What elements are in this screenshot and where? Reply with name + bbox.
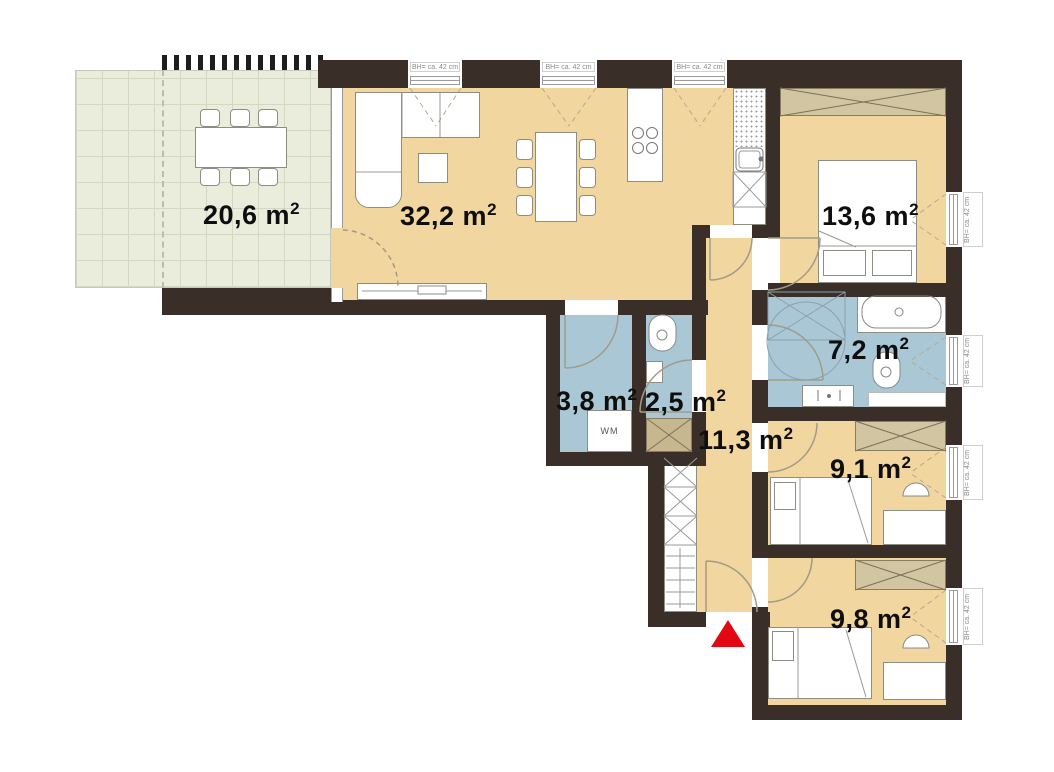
area-sup: 2 [902,603,912,622]
plan-line-overlay [0,0,1054,772]
living-hall-door-arc [710,238,752,280]
area-sup: 2 [628,385,638,404]
area-value: 9,1 m [830,454,902,484]
area-value: 9,8 m [830,604,902,634]
room-98-door-arc [768,558,812,602]
hall-cabinet-detail [664,458,697,608]
area-value: 32,2 m [400,201,487,231]
area-label-room-91: 9,1 m2 [830,453,912,485]
area-sup: 2 [487,200,497,219]
area-sup: 2 [900,334,910,353]
toilet [649,315,676,351]
area-label-wc: 2,5 m2 [645,386,727,418]
door-arcs [343,230,823,612]
area-sup: 2 [717,386,727,405]
area-label-room-98: 9,8 m2 [830,603,912,635]
floor-plan: WM BH= ca. 42 cm BH= ca [0,0,1054,772]
area-label-living: 32,2 m2 [400,200,497,232]
entrance-marker [711,620,745,647]
terrace-door-arc [343,230,398,287]
area-sup: 2 [902,453,912,472]
area-label-shower-room: 3,8 m2 [556,385,638,417]
area-value: 2,5 m [645,387,717,417]
tv [418,286,446,294]
area-sup: 2 [784,424,794,443]
area-value: 20,6 m [203,200,290,230]
area-value: 3,8 m [556,386,628,416]
area-label-bedroom: 13,6 m2 [822,200,919,232]
desk-chair [903,635,929,648]
bathtub-inner [862,296,941,328]
kitchen-sink [736,148,764,171]
cooktop [633,128,658,154]
area-value: 13,6 m [822,201,909,231]
shower-room-door-arc [565,315,618,368]
washbasin-taps [818,390,840,401]
area-value: 7,2 m [828,335,900,365]
area-label-terrace: 20,6 m2 [203,199,300,231]
bedroom-door-arc [768,238,820,290]
area-sup: 2 [909,200,919,219]
area-label-hallway: 11,3 m2 [698,424,794,456]
area-value: 11,3 m [698,425,784,455]
area-sup: 2 [290,199,300,218]
bathroom-door-arc [768,325,823,380]
area-label-bathroom: 7,2 m2 [828,334,910,366]
kitchen-tall-unit [733,172,766,207]
entrance-door-arc [706,561,757,612]
